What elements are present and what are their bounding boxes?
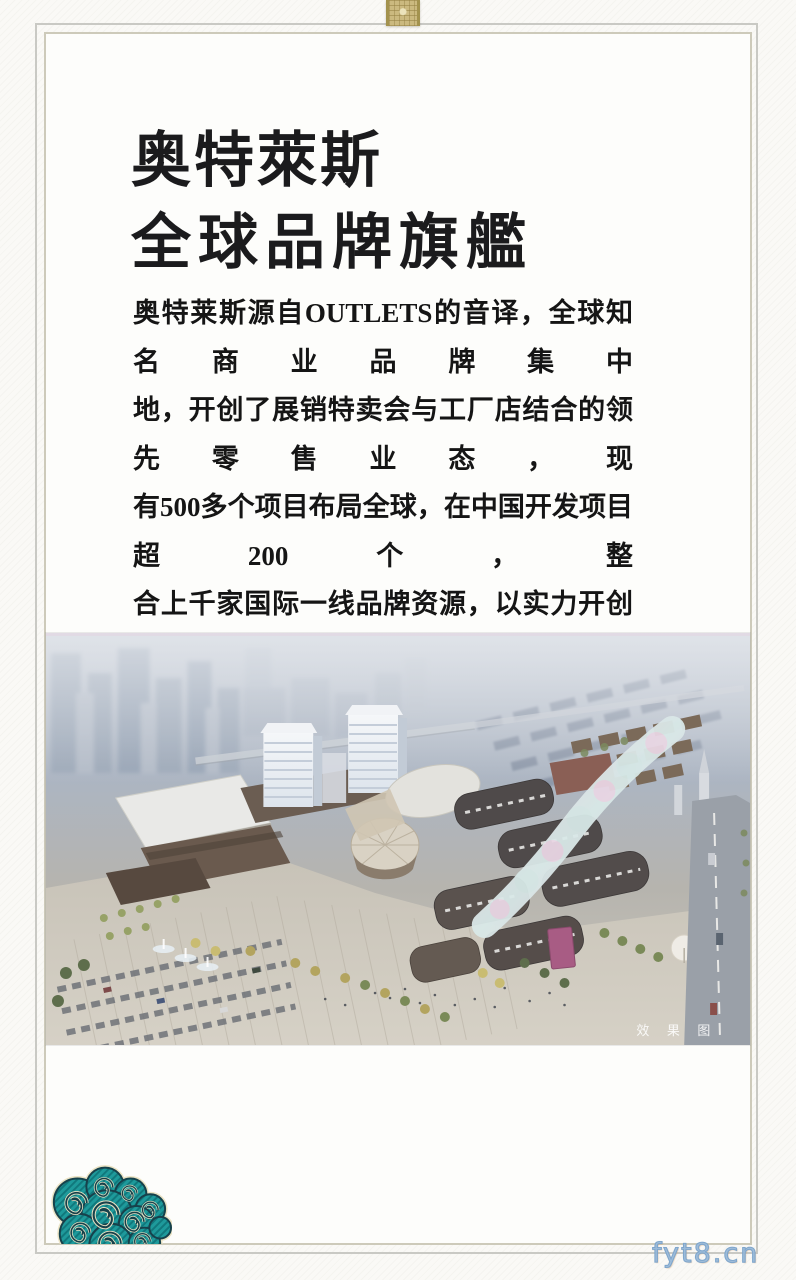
site-watermark: fyt8.cn [652,1238,759,1269]
aerial-rendering-image: 效 果 图 [46,633,750,1045]
body-line: 地，开创了展销特卖会与工厂店结合的领先零售业态，现 [133,386,633,483]
aerial-rendering-illustration: 效 果 图 [46,633,750,1045]
body-line: 有500多个项目布局全球，在中国开发项目超200个，整 [133,483,633,580]
rendering-caption: 效 果 图 [636,1023,717,1038]
brocade-ribbon-ornament-icon [386,0,420,26]
body-line: 奥特莱斯源自OUTLETS的音译，全球知名商业品牌集中 [133,289,633,386]
poster-page: 奥特萊斯 全球品牌旗艦 奥特莱斯源自OUTLETS的音译，全球知名商业品牌集中 … [0,0,796,1280]
page-title-line1: 奥特萊斯 [131,112,383,199]
auspicious-cloud-icon [44,1158,172,1244]
roadway [684,795,750,1045]
page-title-line2: 全球品牌旗艦 [131,194,533,281]
